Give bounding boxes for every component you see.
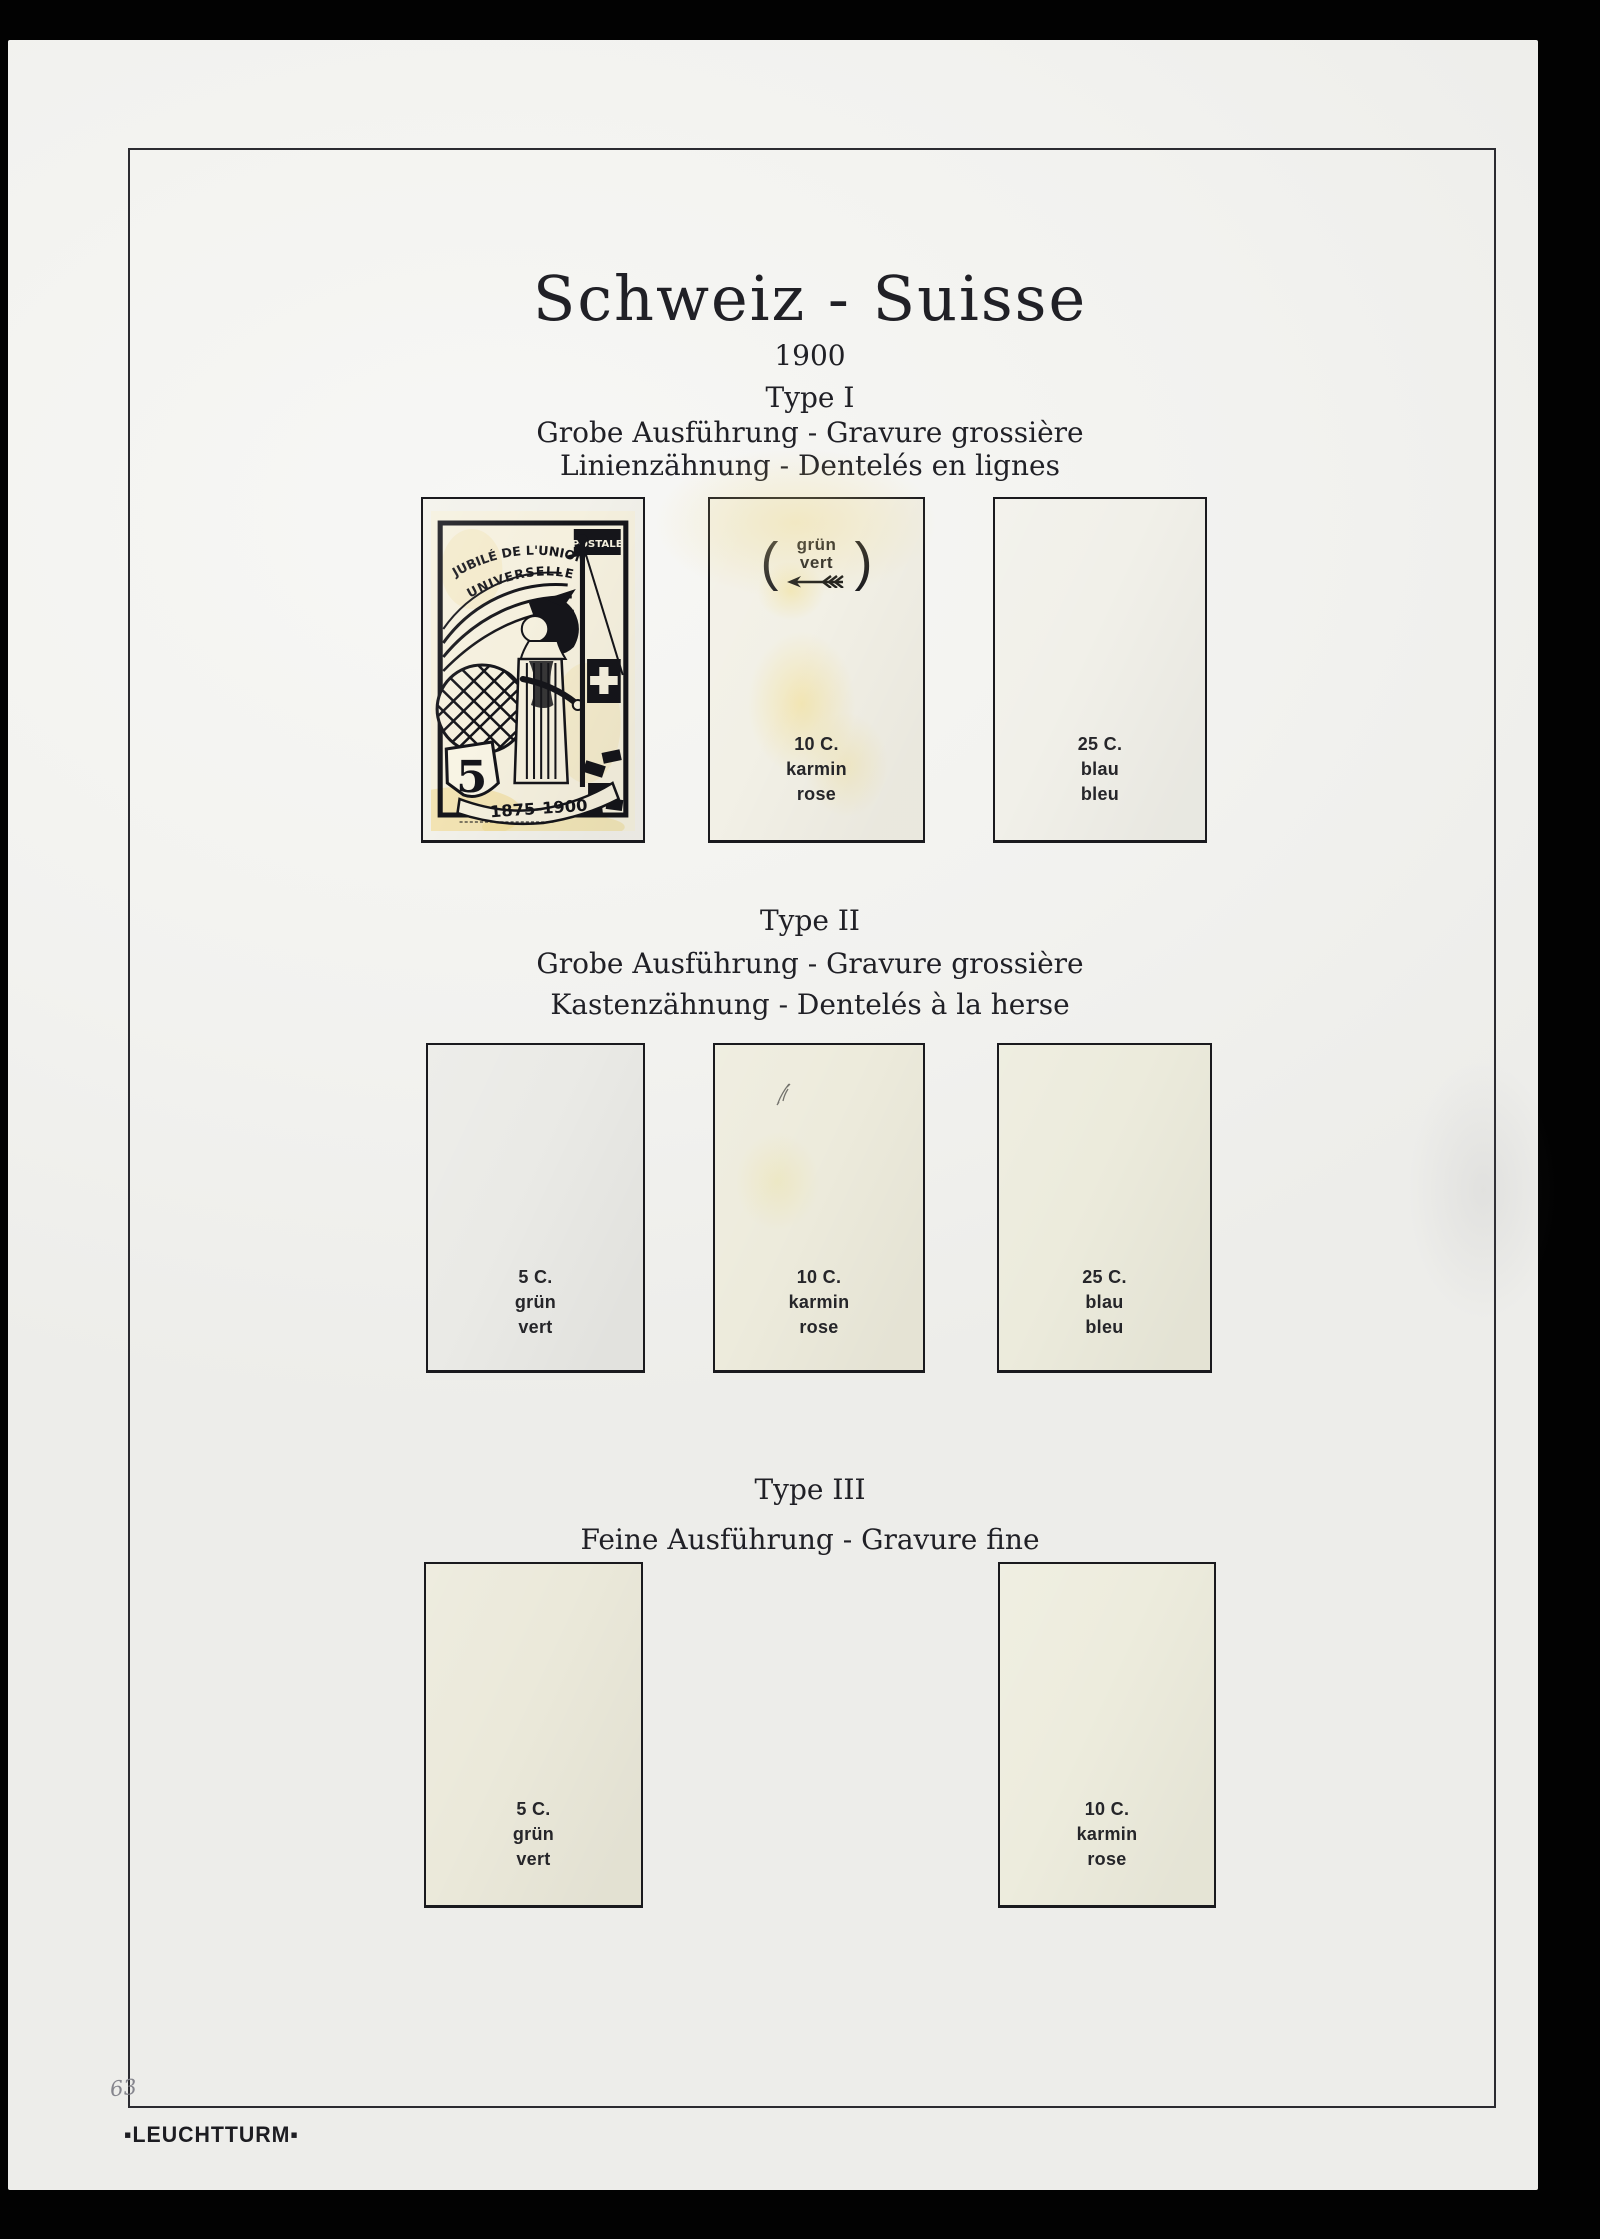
indicator-word-de: grün xyxy=(797,535,837,554)
section-type-i-subheading-1: Grobe Ausführung - Gravure grossière xyxy=(128,416,1492,450)
slot-color-de: karmin xyxy=(715,1290,923,1315)
slot-color-fr: bleu xyxy=(999,1315,1210,1340)
slot-label: 5 C. grün vert xyxy=(428,1265,643,1340)
slot-value: 5 C. xyxy=(428,1265,643,1290)
left-arrow-icon xyxy=(786,574,848,588)
slot-value: 5 C. xyxy=(426,1797,641,1822)
section-type-i-heading: Type I xyxy=(128,381,1492,415)
stamp-slot-type1-10c: ( grün vert ) 10 C. karmin ro xyxy=(708,497,925,843)
slot-color-de: karmin xyxy=(1000,1822,1214,1847)
slot-value: 25 C. xyxy=(999,1265,1210,1290)
slot-color-fr: rose xyxy=(1000,1847,1214,1872)
stamp-slot-type3-5c: 5 C. grün vert xyxy=(424,1562,643,1908)
slot-value: 10 C. xyxy=(1000,1797,1214,1822)
slot-color-de: karmin xyxy=(710,757,923,782)
year-heading: 1900 xyxy=(128,339,1492,373)
album-page: Schweiz - Suisse 1900 Type I Grobe Ausfü… xyxy=(8,40,1538,2190)
section-type-i-subheading-2: Linienzähnung - Dentelés en lignes xyxy=(128,449,1492,483)
stamp-slot-type1-5c: POSTALE JUBILÉ DE L'UNION UNIVERSELLE xyxy=(421,497,645,843)
section-type-ii-subheading-2: Kastenzähnung - Dentelés à la herse xyxy=(128,988,1492,1022)
ink-smudge xyxy=(775,1081,793,1107)
slot-color-fr: rose xyxy=(710,782,923,807)
slot-color-de: grün xyxy=(428,1290,643,1315)
slot-color-fr: bleu xyxy=(995,782,1205,807)
stamp-slot-type1-25c: 25 C. blau bleu xyxy=(993,497,1207,843)
slot-label: 25 C. blau bleu xyxy=(995,732,1205,807)
slot-color-de: blau xyxy=(999,1290,1210,1315)
slot-color-fr: rose xyxy=(715,1315,923,1340)
slot-label: 10 C. karmin rose xyxy=(710,732,923,807)
photo-background: Schweiz - Suisse 1900 Type I Grobe Ausfü… xyxy=(0,0,1600,2239)
stamp-slot-type2-10c: 10 C. karmin rose xyxy=(713,1043,925,1373)
color-indicator: ( grün vert ) xyxy=(710,535,923,589)
section-type-iii-subheading-1: Feine Ausführung - Gravure fine xyxy=(128,1523,1492,1557)
slot-color-fr: vert xyxy=(426,1847,641,1872)
indicator-paren-left: ( xyxy=(761,535,779,589)
section-type-iii-heading: Type III xyxy=(128,1473,1492,1507)
slot-label: 10 C. karmin rose xyxy=(1000,1797,1214,1872)
slot-value: 10 C. xyxy=(715,1265,923,1290)
slot-color-de: grün xyxy=(426,1822,641,1847)
indicator-word-fr: vert xyxy=(800,553,833,572)
page-title: Schweiz - Suisse xyxy=(128,262,1492,335)
indicator-words: grün vert xyxy=(786,536,848,588)
stamp-slot-type2-5c: 5 C. grün vert xyxy=(426,1043,645,1373)
slot-label: 25 C. blau bleu xyxy=(999,1265,1210,1340)
slot-label: 10 C. karmin rose xyxy=(715,1265,923,1340)
section-type-ii-subheading-1: Grobe Ausführung - Gravure grossière xyxy=(128,947,1492,981)
slot-color-de: blau xyxy=(995,757,1205,782)
publisher-imprint: ▪LEUCHTTURM▪ xyxy=(124,2122,299,2148)
stamp-denomination: 5 xyxy=(456,751,487,802)
slot-value: 10 C. xyxy=(710,732,923,757)
stamp-slot-type2-25c: 25 C. blau bleu xyxy=(997,1043,1212,1373)
stamp-slot-type3-10c: 10 C. karmin rose xyxy=(998,1562,1216,1908)
indicator-paren-right: ) xyxy=(855,535,873,589)
stamp-image-upu-jubilee: POSTALE JUBILÉ DE L'UNION UNIVERSELLE xyxy=(431,511,635,831)
slot-color-fr: vert xyxy=(428,1315,643,1340)
section-type-ii-heading: Type II xyxy=(128,904,1492,938)
slot-value: 25 C. xyxy=(995,732,1205,757)
pencil-note: 63 xyxy=(109,2075,138,2102)
slot-label: 5 C. grün vert xyxy=(426,1797,641,1872)
